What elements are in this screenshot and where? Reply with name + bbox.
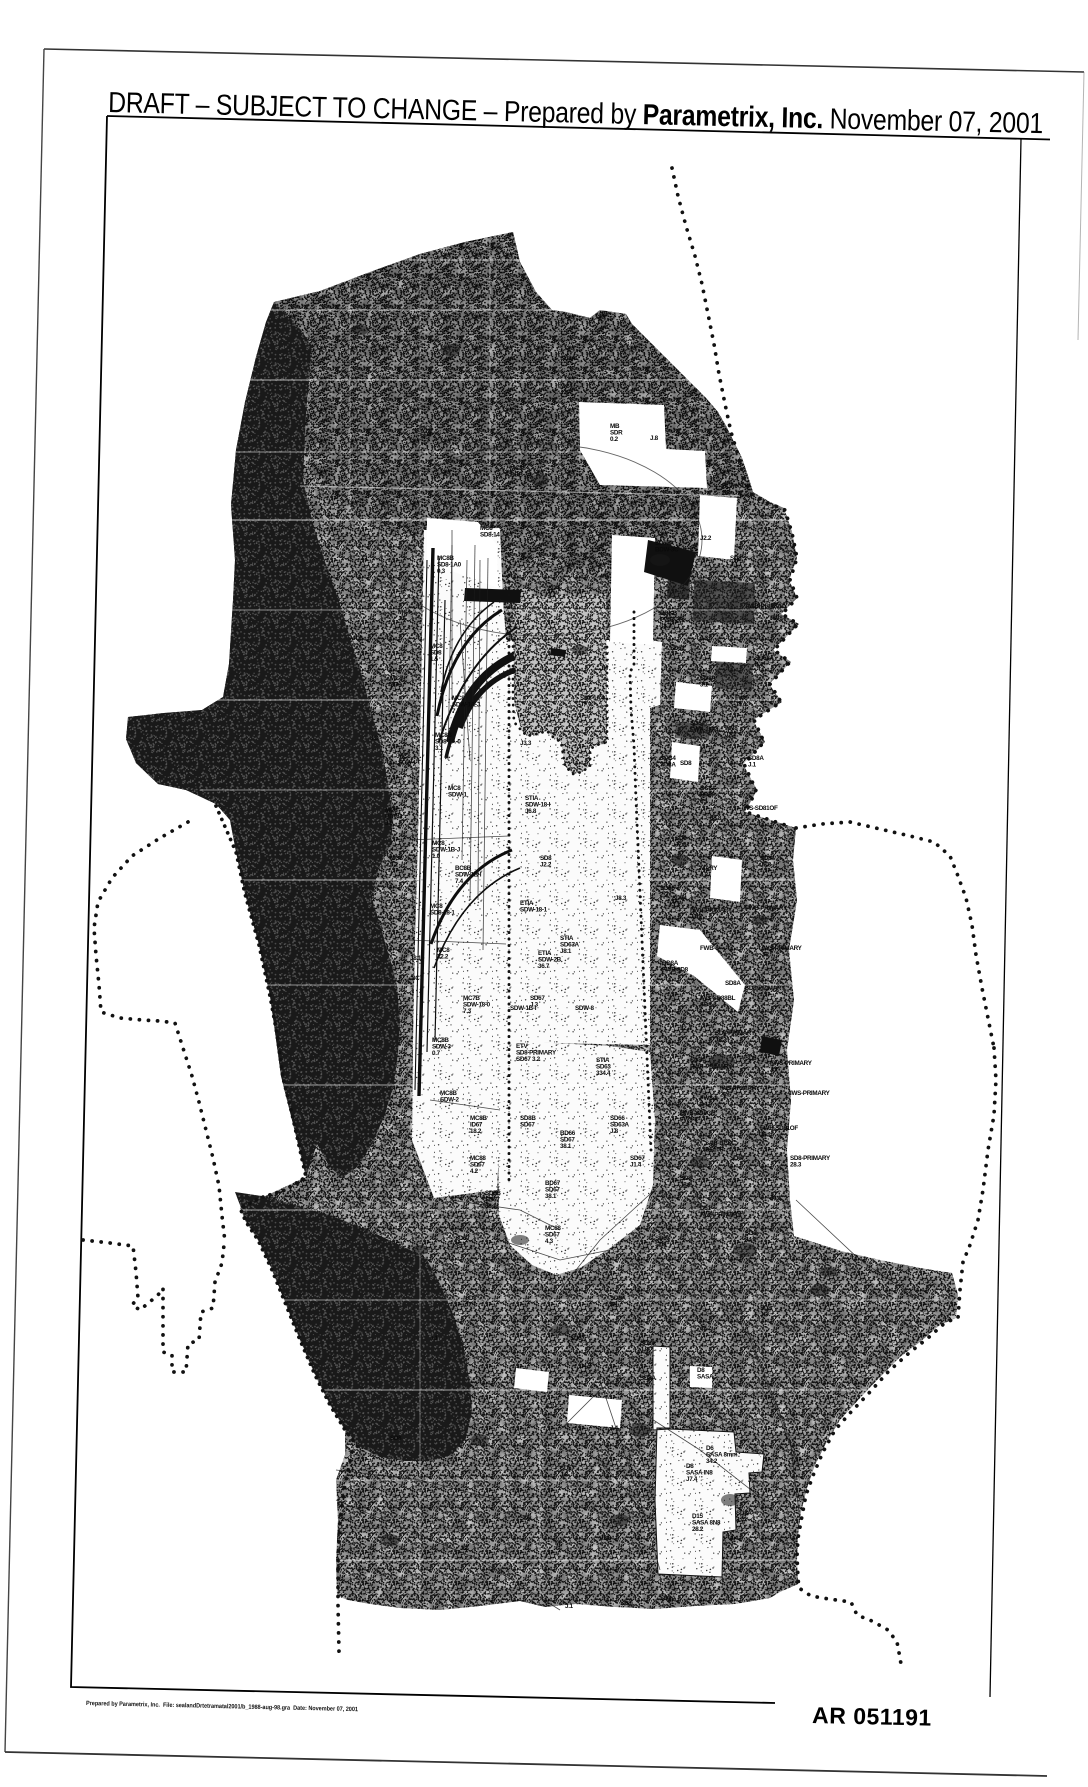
svg-text:SD8J2.1: SD8J2.1 bbox=[465, 1295, 477, 1308]
svg-text:SD62: SD62 bbox=[670, 645, 685, 652]
svg-text:FWB-8: FWB-8 bbox=[700, 945, 719, 952]
svg-text:AR 051191: AR 051191 bbox=[812, 1702, 932, 1731]
svg-text:SD8BSD67: SD8BSD67 bbox=[520, 1115, 536, 1128]
svg-text:J.1: J.1 bbox=[360, 555, 369, 562]
svg-text:SD8A: SD8A bbox=[660, 1595, 676, 1602]
svg-text:STIASD63334.4: STIASD63334.4 bbox=[596, 1057, 611, 1077]
svg-text:J.1: J.1 bbox=[430, 1335, 439, 1342]
svg-text:J4.1: J4.1 bbox=[770, 1195, 782, 1202]
svg-text:J.3: J.3 bbox=[370, 735, 379, 742]
svg-text:J.2: J.2 bbox=[480, 385, 489, 392]
svg-text:A.2: A.2 bbox=[545, 1403, 555, 1410]
svg-text:FW8: FW8 bbox=[770, 615, 783, 622]
svg-text:AWB-PRIMARY: AWB-PRIMARY bbox=[745, 603, 788, 610]
svg-text:4B: 4B bbox=[600, 311, 608, 318]
svg-text:J.1: J.1 bbox=[565, 1603, 574, 1610]
svg-text:J.3: J.3 bbox=[700, 635, 709, 642]
svg-text:J.8: J.8 bbox=[650, 435, 659, 442]
svg-text:SD8: SD8 bbox=[390, 1435, 402, 1442]
svg-text:SD8: SD8 bbox=[680, 760, 692, 767]
svg-text:J8.8: J8.8 bbox=[710, 815, 722, 822]
svg-text:J2.8: J2.8 bbox=[600, 1535, 612, 1542]
svg-text:J.4: J.4 bbox=[730, 1535, 739, 1542]
svg-text:SD8J2.2: SD8J2.2 bbox=[540, 855, 552, 868]
svg-text:M: M bbox=[555, 1540, 560, 1547]
svg-text:SD8J3.1: SD8J3.1 bbox=[680, 1175, 692, 1188]
svg-text:J4.5: J4.5 bbox=[580, 1363, 592, 1370]
svg-text:SD8-PRIMARY: SD8-PRIMARY bbox=[745, 985, 786, 992]
svg-text:SD67: SD67 bbox=[730, 1155, 745, 1162]
svg-text:MC8SD8: MC8SD8 bbox=[390, 675, 403, 688]
svg-text:SD8A: SD8A bbox=[725, 980, 741, 987]
svg-text:SD8: SD8 bbox=[745, 1055, 757, 1062]
svg-text:SD8J2.3: SD8J2.3 bbox=[675, 835, 687, 848]
svg-text:FWB-PRIMARY: FWB-PRIMARY bbox=[745, 905, 788, 912]
svg-text:J.4: J.4 bbox=[600, 665, 609, 672]
svg-text:SDW-8: SDW-8 bbox=[575, 1005, 594, 1012]
svg-text:MC4SD8: MC4SD8 bbox=[420, 425, 433, 438]
svg-text:SD8A: SD8A bbox=[640, 1375, 656, 1382]
svg-text:SD8: SD8 bbox=[620, 1600, 632, 1607]
svg-text:MC8BSDW-2: MC8BSDW-2 bbox=[440, 1090, 459, 1103]
svg-text:J.2: J.2 bbox=[460, 1545, 469, 1552]
svg-text:IWS-SD81OF: IWS-SD81OF bbox=[742, 805, 778, 812]
svg-text:IWS-PRIMARY: IWS-PRIMARY bbox=[790, 1090, 831, 1097]
svg-text:SDB4SD8A: SDB4SD8A bbox=[660, 755, 676, 768]
svg-text:J.2: J.2 bbox=[748, 1477, 757, 1484]
svg-text:SD8: SD8 bbox=[520, 1515, 532, 1522]
svg-text:SD67: SD67 bbox=[570, 1335, 585, 1342]
svg-text:J8.1: J8.1 bbox=[410, 955, 422, 962]
svg-text:SD8A: SD8A bbox=[560, 355, 576, 362]
svg-text:J8.3: J8.3 bbox=[615, 895, 627, 902]
svg-text:J2.4: J2.4 bbox=[680, 1025, 692, 1032]
svg-text:SD8J4.3: SD8J4.3 bbox=[745, 1230, 757, 1243]
svg-text:MC8: MC8 bbox=[350, 635, 363, 642]
svg-text:8C7: 8C7 bbox=[412, 975, 423, 982]
svg-text:J2.2: J2.2 bbox=[700, 1325, 712, 1332]
svg-text:J2.2: J2.2 bbox=[700, 535, 712, 542]
svg-text:J.4: J.4 bbox=[610, 1425, 619, 1432]
svg-text:J3.3: J3.3 bbox=[520, 740, 532, 747]
